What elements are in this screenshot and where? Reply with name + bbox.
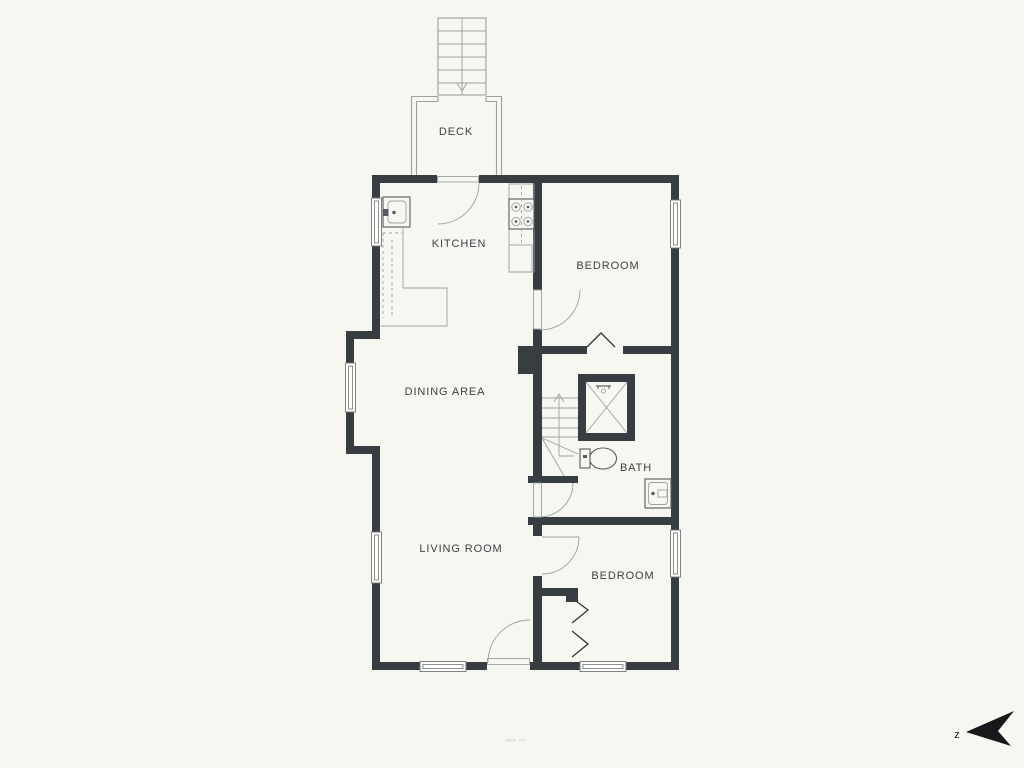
stairs-down-arrow	[457, 30, 467, 91]
window-kitchen-left	[372, 198, 382, 246]
window-bedroom-bottom-bottom	[580, 662, 626, 672]
north-arrow-label: z	[954, 729, 960, 741]
window-living-bottom	[420, 662, 466, 672]
floor-plan-canvas: DECK KITCHEN BEDROOM DINING AREA BATH LI…	[0, 0, 1024, 768]
closet-door-bedroom-top-bifold	[587, 333, 615, 347]
stairs-up-arrow	[554, 394, 574, 456]
door-deck-kitchen	[438, 177, 480, 225]
stairs-interior	[542, 394, 578, 476]
living-room-label: LIVING ROOM	[419, 543, 502, 555]
bath-label: BATH	[620, 462, 652, 474]
shower	[586, 382, 627, 433]
window-dining-left	[346, 363, 356, 412]
dining-area-label: DINING AREA	[405, 386, 486, 398]
floor-plan-page: DECK KITCHEN BEDROOM DINING AREA BATH LI…	[0, 0, 1024, 768]
window-bedroom-top-right	[671, 200, 681, 248]
window-bedroom-bottom-right	[671, 530, 681, 577]
kitchen-label: KITCHEN	[432, 238, 487, 250]
bath-sink	[645, 479, 671, 508]
door-bedroom-top	[534, 290, 581, 330]
window-living-left	[372, 532, 382, 583]
door-bedroom-bottom	[542, 537, 579, 574]
watermark	[506, 739, 525, 742]
toilet	[580, 448, 617, 469]
bedroom-bottom-label: BEDROOM	[591, 570, 654, 582]
deck-label: DECK	[439, 126, 473, 138]
exterior-stairs	[438, 18, 486, 95]
door-bath	[534, 483, 574, 517]
closet-door-bedroom-bottom-bifold	[572, 598, 588, 657]
kitchen-sink	[383, 197, 410, 227]
north-arrow-icon	[966, 711, 1014, 746]
north-arrow: z	[954, 711, 1014, 746]
door-front-entry	[488, 620, 531, 665]
bedroom-top-label: BEDROOM	[576, 260, 639, 272]
stove	[509, 184, 534, 272]
